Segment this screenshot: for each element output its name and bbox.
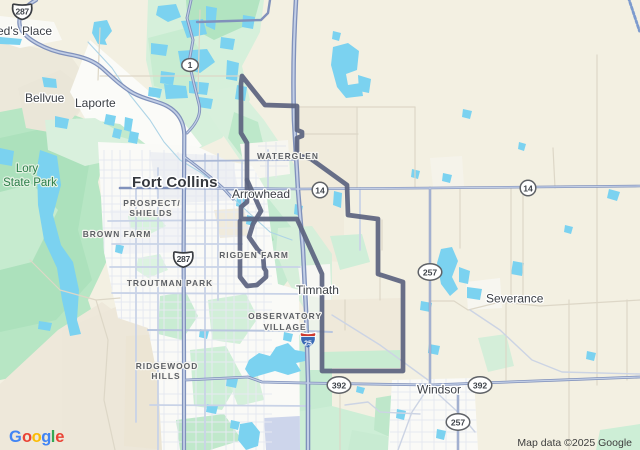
- svg-text:287: 287: [15, 6, 29, 16]
- svg-text:257: 257: [423, 267, 438, 277]
- svg-text:VILLAGE: VILLAGE: [263, 322, 306, 332]
- svg-text:Windsor: Windsor: [417, 383, 461, 397]
- svg-text:PROSPECT/: PROSPECT/: [123, 198, 180, 208]
- svg-text:BROWN FARM: BROWN FARM: [83, 229, 152, 239]
- svg-text:TROUTMAN PARK: TROUTMAN PARK: [127, 278, 213, 288]
- svg-text:RIDGEWOOD: RIDGEWOOD: [136, 361, 199, 371]
- svg-text:G: G: [9, 428, 22, 446]
- svg-text:25: 25: [304, 340, 312, 347]
- svg-text:Timnath: Timnath: [296, 283, 339, 297]
- svg-text:Laporte: Laporte: [75, 96, 116, 110]
- svg-text:o: o: [22, 428, 32, 446]
- svg-text:OBSERVATORY: OBSERVATORY: [248, 311, 322, 321]
- svg-text:SHIELDS: SHIELDS: [129, 208, 172, 218]
- svg-text:14: 14: [523, 183, 533, 193]
- svg-text:o: o: [32, 428, 42, 446]
- svg-text:Fort Collins: Fort Collins: [132, 174, 218, 191]
- svg-text:Lory: Lory: [16, 163, 39, 175]
- svg-text:g: g: [41, 428, 51, 446]
- svg-text:e: e: [55, 428, 64, 446]
- svg-text:257: 257: [451, 417, 466, 427]
- svg-text:287: 287: [177, 254, 191, 264]
- svg-text:1: 1: [188, 60, 193, 70]
- svg-text:Severance: Severance: [486, 292, 544, 306]
- svg-text:Arrowhead: Arrowhead: [232, 187, 290, 201]
- svg-text:14: 14: [315, 185, 325, 195]
- svg-text:392: 392: [332, 380, 347, 390]
- svg-text:WATERGLEN: WATERGLEN: [257, 151, 319, 161]
- svg-text:Map data ©2025 Google: Map data ©2025 Google: [517, 437, 632, 449]
- svg-text:RIGDEN FARM: RIGDEN FARM: [219, 250, 289, 260]
- svg-text:State Park: State Park: [3, 177, 57, 189]
- svg-text:392: 392: [473, 380, 488, 390]
- svg-text:HILLS: HILLS: [151, 371, 180, 381]
- svg-text:ed's Place: ed's Place: [0, 24, 52, 38]
- svg-text:Bellvue: Bellvue: [25, 91, 65, 105]
